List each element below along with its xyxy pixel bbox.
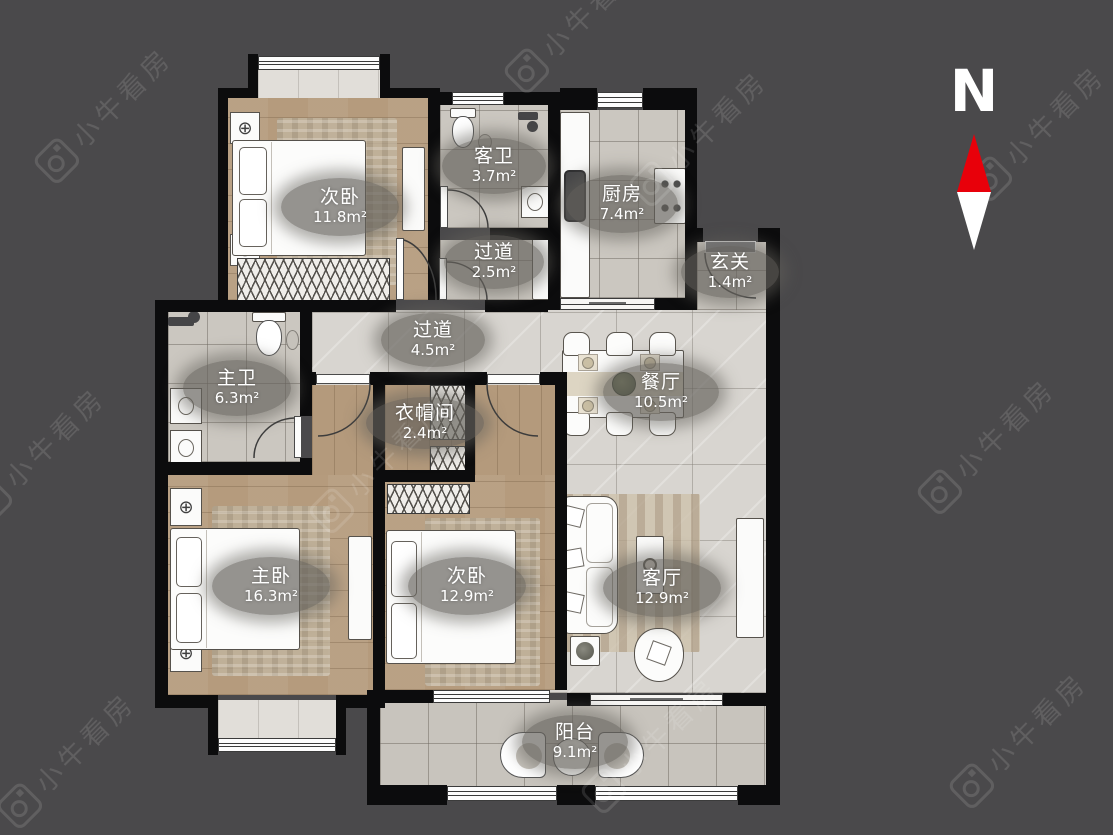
room-area: 4.5m² bbox=[411, 342, 455, 359]
room-name: 过道 bbox=[413, 320, 453, 342]
room-label-master-bedroom: 主卧 16.3m² bbox=[212, 557, 330, 615]
room-label-corridor-main: 过道 4.5m² bbox=[381, 313, 485, 367]
room-name: 客厅 bbox=[642, 568, 682, 590]
room-area: 6.3m² bbox=[215, 390, 259, 407]
room-label-entry: 玄关 1.4m² bbox=[681, 246, 779, 298]
room-name: 厨房 bbox=[602, 184, 642, 206]
room-area: 2.4m² bbox=[403, 425, 447, 442]
floor-plan-page: { "watermark": { "text": "小牛看房" }, "comp… bbox=[0, 0, 1113, 835]
compass: N bbox=[946, 62, 1002, 256]
room-label-kitchen: 厨房 7.4m² bbox=[566, 175, 678, 233]
room-name: 餐厅 bbox=[641, 372, 681, 394]
room-area: 11.8m² bbox=[313, 209, 367, 226]
room-label-living: 客厅 12.9m² bbox=[603, 559, 721, 617]
room-name: 过道 bbox=[474, 242, 514, 264]
room-name: 次卧 bbox=[447, 566, 487, 588]
room-area: 1.4m² bbox=[708, 274, 752, 291]
room-label-bedroom2: 次卧 12.9m² bbox=[408, 557, 526, 615]
room-area: 12.9m² bbox=[440, 588, 494, 605]
room-name: 衣帽间 bbox=[395, 403, 455, 425]
room-area: 16.3m² bbox=[244, 588, 298, 605]
room-name: 主卧 bbox=[251, 566, 291, 588]
room-name: 阳台 bbox=[555, 722, 595, 744]
room-name: 次卧 bbox=[320, 187, 360, 209]
room-area: 3.7m² bbox=[472, 168, 516, 185]
room-area: 7.4m² bbox=[600, 206, 644, 223]
room-area: 9.1m² bbox=[553, 744, 597, 761]
room-label-corridor-small: 过道 2.5m² bbox=[444, 235, 544, 289]
room-area: 12.9m² bbox=[635, 590, 689, 607]
room-label-dining: 餐厅 10.5m² bbox=[603, 363, 719, 421]
room-label-master-bath: 主卫 6.3m² bbox=[183, 360, 291, 416]
room-label-guest-bath: 客卫 3.7m² bbox=[442, 138, 546, 194]
room-name: 玄关 bbox=[710, 252, 750, 274]
room-area: 2.5m² bbox=[472, 264, 516, 281]
room-label-bedroom-north: 次卧 11.8m² bbox=[281, 178, 399, 236]
compass-needle-icon bbox=[954, 134, 994, 252]
room-label-closet: 衣帽间 2.4m² bbox=[366, 397, 484, 449]
compass-north-label: N bbox=[946, 62, 1002, 120]
room-name: 主卫 bbox=[217, 368, 257, 390]
room-label-balcony: 阳台 9.1m² bbox=[522, 715, 628, 769]
room-area: 10.5m² bbox=[634, 394, 688, 411]
room-name: 客卫 bbox=[474, 146, 514, 168]
